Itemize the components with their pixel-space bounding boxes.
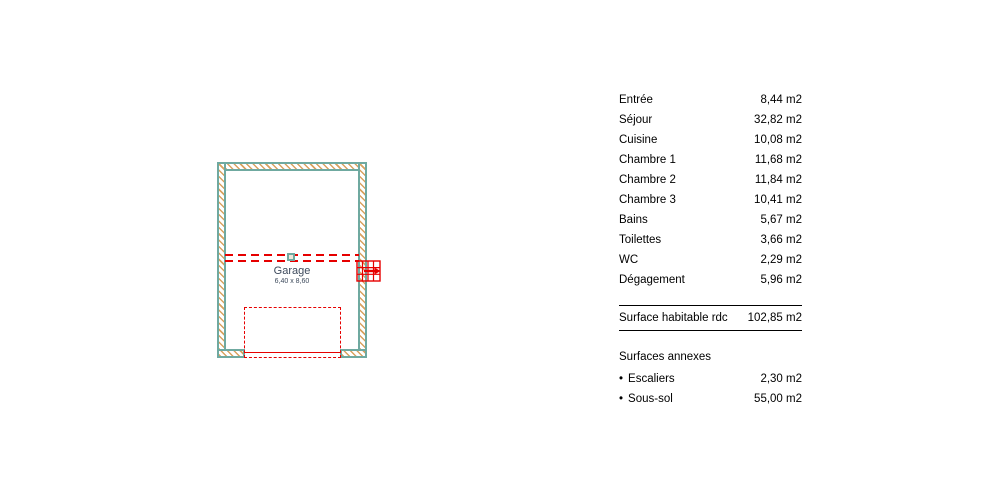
total-label: Surface habitable rdc	[619, 312, 728, 324]
room-area: 10,41 m2	[754, 194, 802, 206]
annex-value: 2,30 m2	[760, 373, 802, 385]
garage-door-clearance-dashed-rect	[244, 307, 341, 358]
annex-label: Escaliers	[628, 373, 675, 385]
table-row: Toilettes 3,66 m2	[619, 230, 802, 250]
room-label: Toilettes	[619, 234, 661, 246]
table-row: Chambre 3 10,41 m2	[619, 190, 802, 210]
room-area: 8,44 m2	[760, 94, 802, 106]
stairs-icon	[356, 260, 381, 282]
room-label: Dégagement	[619, 274, 685, 286]
room-label: Chambre 2	[619, 174, 676, 186]
total-row: Surface habitable rdc 102,85 m2	[619, 308, 802, 328]
room-label: WC	[619, 254, 638, 266]
garage-door-line	[245, 352, 340, 353]
room-label: Chambre 1	[619, 154, 676, 166]
room-area: 10,08 m2	[754, 134, 802, 146]
room-label: Cuisine	[619, 134, 657, 146]
room-area: 32,82 m2	[754, 114, 802, 126]
annex-row: • Sous-sol 55,00 m2	[619, 389, 802, 409]
table-row: Chambre 1 11,68 m2	[619, 150, 802, 170]
room-label: Séjour	[619, 114, 652, 126]
room-area: 5,67 m2	[760, 214, 802, 226]
table-row: WC 2,29 m2	[619, 250, 802, 270]
room-label: Bains	[619, 214, 648, 226]
room-area: 3,66 m2	[760, 234, 802, 246]
total-value: 102,85 m2	[748, 312, 802, 324]
structural-post	[287, 253, 295, 261]
room-dimensions-label: 6,40 x 8,60	[232, 278, 352, 285]
table-row: Cuisine 10,08 m2	[619, 130, 802, 150]
room-label: Chambre 3	[619, 194, 676, 206]
room-label: Entrée	[619, 94, 653, 106]
table-row: Dégagement 5,96 m2	[619, 270, 802, 290]
room-name-label: Garage	[232, 265, 352, 277]
table-row: Bains 5,67 m2	[619, 210, 802, 230]
total-separator-top	[619, 305, 802, 306]
annex-row: • Escaliers 2,30 m2	[619, 369, 802, 389]
table-row: Chambre 2 11,84 m2	[619, 170, 802, 190]
floor-plan-page: Garage 6,40 x 8,60 Entrée 8,44 m2 Séjour…	[0, 0, 1000, 500]
room-area: 2,29 m2	[760, 254, 802, 266]
total-separator-bottom	[619, 330, 802, 331]
bullet-icon: •	[619, 393, 623, 405]
areas-table: Entrée 8,44 m2 Séjour 32,82 m2 Cuisine 1…	[619, 90, 802, 290]
room-area: 5,96 m2	[760, 274, 802, 286]
annex-value: 55,00 m2	[754, 393, 802, 405]
table-row: Entrée 8,44 m2	[619, 90, 802, 110]
room-area: 11,68 m2	[755, 154, 802, 166]
annex-label: Sous-sol	[628, 393, 673, 405]
annex-section-header: Surfaces annexes	[619, 351, 802, 363]
wall-bottom-right	[340, 349, 367, 358]
wall-top	[217, 162, 367, 171]
bullet-icon: •	[619, 373, 623, 385]
wall-bottom-left	[217, 349, 245, 358]
room-area: 11,84 m2	[755, 174, 802, 186]
table-row: Séjour 32,82 m2	[619, 110, 802, 130]
